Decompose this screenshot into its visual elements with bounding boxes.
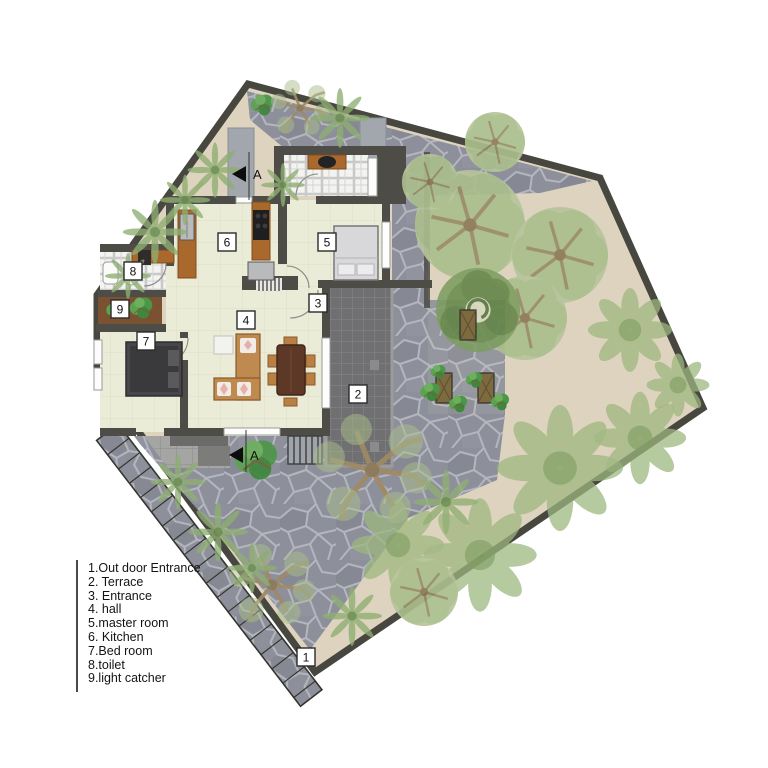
svg-text:1: 1 — [303, 651, 310, 665]
legend-item-5: 5.master room — [88, 617, 201, 631]
bathroom-window — [368, 158, 377, 196]
bedroom-window-1 — [94, 340, 102, 364]
floor-plan-canvas: A A 1 2 3 4 5 6 7 8 9 1.Out door Entranc… — [0, 0, 768, 768]
svg-text:6: 6 — [224, 236, 231, 250]
room-label-8: 8 — [124, 262, 142, 280]
hall-window-south — [224, 428, 280, 435]
master-bed — [334, 226, 378, 280]
legend-item-1: 1.Out door Entrance — [88, 562, 201, 576]
room-label-5: 5 — [318, 233, 336, 251]
legend-item-4: 4. hall — [88, 603, 201, 617]
room-label-7: 7 — [137, 332, 155, 350]
room-label-6: 6 — [218, 233, 236, 251]
svg-text:8: 8 — [130, 265, 137, 279]
svg-text:A: A — [250, 448, 259, 463]
svg-text:A: A — [253, 167, 262, 182]
legend-item-9: 9.light catcher — [88, 672, 201, 686]
svg-text:2: 2 — [355, 388, 362, 402]
svg-text:3: 3 — [315, 297, 322, 311]
bathroom-vanity — [308, 155, 346, 169]
master-window — [382, 222, 390, 268]
svg-text:9: 9 — [117, 303, 124, 317]
room-label-3: 3 — [309, 294, 327, 312]
legend-item-6: 6. Kitchen — [88, 631, 201, 645]
room-label-9: 9 — [111, 300, 129, 318]
room-label-4: 4 — [237, 311, 255, 329]
room-light-catcher — [98, 296, 162, 324]
hall-window-east — [322, 338, 330, 408]
shower-block — [377, 146, 406, 204]
svg-text:4: 4 — [243, 314, 250, 328]
legend-item-7: 7.Bed room — [88, 645, 201, 659]
legend-item-3: 3. Entrance — [88, 590, 201, 604]
coffee-table — [214, 336, 233, 354]
kitchen-fridge — [248, 262, 274, 280]
room-label-2: 2 — [349, 385, 367, 403]
bedroom-window-2 — [94, 368, 102, 390]
legend-item-2: 2. Terrace — [88, 576, 201, 590]
room-label-1: 1 — [297, 648, 315, 666]
legend-item-8: 8.toilet — [88, 659, 201, 673]
svg-text:5: 5 — [324, 236, 331, 250]
legend: 1.Out door Entrance 2. Terrace 3. Entran… — [76, 560, 201, 692]
svg-text:7: 7 — [143, 335, 150, 349]
kitchen-window — [236, 197, 252, 203]
